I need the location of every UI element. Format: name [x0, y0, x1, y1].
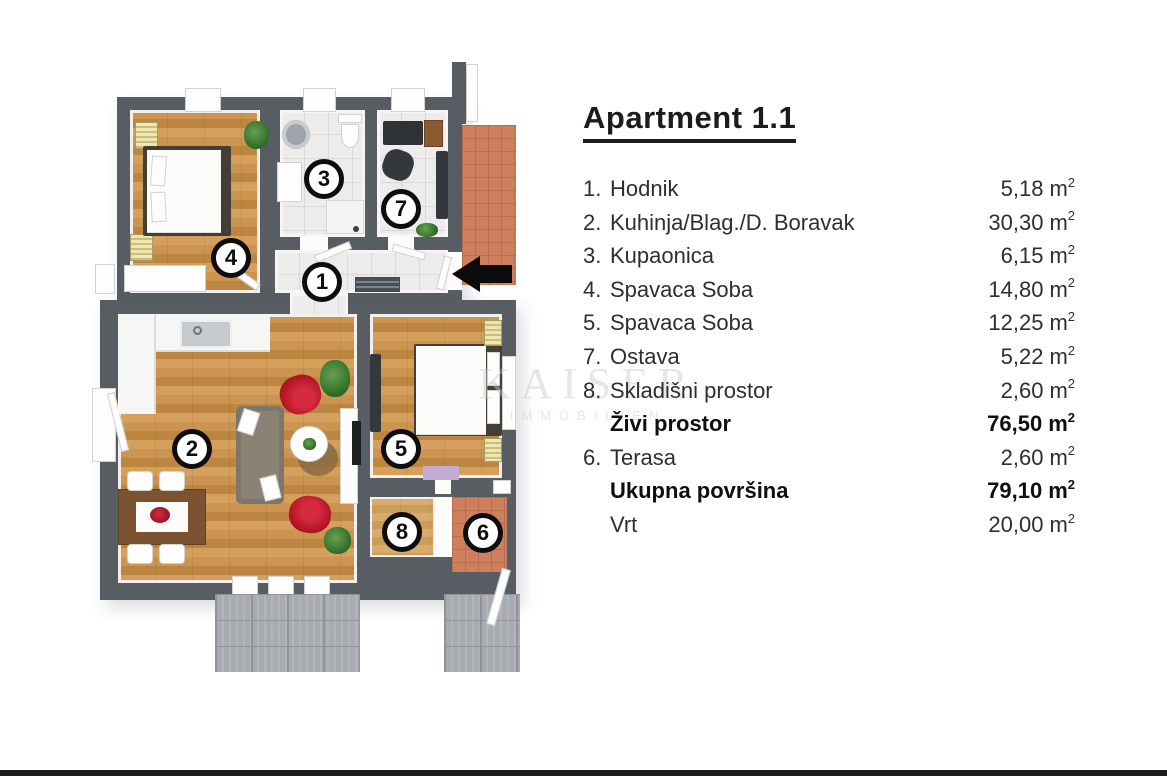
bottom-border-bar — [0, 770, 1167, 776]
window-bottom-wall-right — [493, 480, 511, 494]
area-row-ostava: 7. Ostava 5,22m2 — [583, 340, 1075, 374]
row-label: Skladišni prostor — [610, 374, 1001, 408]
door-gap-room5-room8 — [435, 480, 451, 494]
window-room4-top — [185, 88, 221, 112]
row-number: 8. — [583, 374, 610, 408]
room-badge-6: 6 — [463, 513, 503, 553]
bathroom-sink — [277, 162, 302, 202]
shower-drain — [353, 226, 359, 232]
row-value: 30,30m2 — [988, 206, 1075, 240]
row-number: 1. — [583, 172, 610, 206]
row-value: 79,10m2 — [987, 474, 1075, 508]
wall-room8-bottom — [357, 557, 452, 572]
area-row-spavaca-2: 5. Spavaca Soba 12,25m2 — [583, 306, 1075, 340]
window-room5-right — [502, 356, 516, 430]
area-row-hodnik: 1. Hodnik 5,18m2 — [583, 172, 1075, 206]
mat-lavender — [423, 466, 459, 480]
coffee-table-plant — [303, 438, 316, 450]
row-value: 2,60m2 — [1001, 441, 1075, 475]
terrace-corridor — [435, 497, 452, 557]
bed-room5-pillow-1 — [487, 352, 500, 386]
dining-chair-3 — [127, 544, 153, 564]
tv-screen — [352, 421, 361, 465]
kitchen-faucet — [193, 326, 202, 335]
plant-living-tall — [320, 360, 350, 397]
room-badge-5: 5 — [381, 429, 421, 469]
plant-room7 — [416, 223, 438, 237]
row-label: Ukupna površina — [610, 474, 987, 508]
wall-stub-white — [466, 64, 478, 122]
room-badge-3: 3 — [304, 159, 344, 199]
area-row-skladisni: 8. Skladišni prostor 2,60m2 — [583, 374, 1075, 408]
kitchen-counter-left — [118, 314, 156, 414]
area-row-kuhinja: 2. Kuhinja/Blag./D. Boravak 30,30m2 — [583, 206, 1075, 240]
toilet-tank — [338, 114, 362, 123]
bed-room5-pillow-2 — [487, 390, 500, 424]
patio-left — [215, 594, 360, 672]
room-badge-7: 7 — [381, 189, 421, 229]
kitchen-sink — [180, 320, 232, 348]
plant-living-low — [324, 527, 351, 554]
room-badge-4: 4 — [211, 238, 251, 278]
washing-machine — [282, 120, 310, 149]
room-badge-1: 1 — [302, 262, 342, 302]
row-label: Ostava — [610, 340, 1001, 374]
window-room7-top — [391, 88, 425, 112]
entrance-arrow-shaft — [479, 265, 512, 283]
bed-room4-pillow-1 — [150, 156, 167, 187]
wall-stub-top — [452, 62, 466, 124]
radiator-room4-top — [135, 122, 158, 149]
window-bath-top — [303, 88, 336, 112]
door-gap-bath — [300, 237, 328, 250]
area-row-spavaca-1: 4. Spavaca Soba 14,80m2 — [583, 273, 1075, 307]
dining-chair-2 — [159, 471, 185, 491]
area-row-vrt: Vrt 20,00m2 — [583, 508, 1075, 542]
radiator-room5-bottom — [484, 438, 502, 462]
row-value: 12,25m2 — [988, 306, 1075, 340]
desk-room7 — [383, 121, 423, 145]
row-label: Vrt — [610, 508, 988, 542]
patio-right — [444, 594, 520, 672]
row-number: 4. — [583, 273, 610, 307]
entrance-arrow-icon — [452, 256, 480, 292]
page-title: Apartment 1.1 — [583, 100, 796, 143]
row-label: Živi prostor — [610, 407, 987, 441]
row-number — [583, 474, 610, 508]
dining-chair-4 — [159, 544, 185, 564]
radiator-room4-bottom — [130, 234, 153, 261]
toilet-bowl — [341, 124, 359, 148]
dining-chair-1 — [127, 471, 153, 491]
row-number: 3. — [583, 239, 610, 273]
area-row-ukupna: Ukupna površina 79,10m2 — [583, 474, 1075, 508]
row-value: 14,80m2 — [988, 273, 1075, 307]
floorplan: 4 3 7 1 2 5 8 6 — [0, 0, 540, 700]
row-number: 7. — [583, 340, 610, 374]
radiator-room5-top — [484, 320, 502, 346]
row-label: Spavaca Soba — [610, 273, 988, 307]
row-label: Kupaonica — [610, 239, 1001, 273]
room-badge-8: 8 — [382, 512, 422, 552]
row-number: 5. — [583, 306, 610, 340]
row-label: Hodnik — [610, 172, 1001, 206]
wardrobe-room5 — [370, 354, 381, 432]
row-label: Kuhinja/Blag./D. Boravak — [610, 206, 988, 240]
row-value: 20,00m2 — [988, 508, 1075, 542]
table-flowers — [150, 507, 170, 523]
row-label: Terasa — [610, 441, 1001, 475]
floorplan-page: 4 3 7 1 2 5 8 6 KAISER IMMOBILIEN Apartm… — [0, 0, 1167, 776]
row-number: 2. — [583, 206, 610, 240]
bed-room4-pillow-2 — [150, 192, 167, 223]
area-row-zivi-prostor: Živi prostor 76,50m2 — [583, 407, 1075, 441]
row-value: 5,18m2 — [1001, 172, 1075, 206]
plant-room4 — [244, 121, 269, 149]
row-value: 5,22m2 — [1001, 340, 1075, 374]
row-number — [583, 407, 610, 441]
cabinet-room7 — [424, 120, 443, 147]
exterior-ledge — [95, 264, 115, 294]
area-table: 1. Hodnik 5,18m2 2. Kuhinja/Blag./D. Bor… — [583, 172, 1075, 542]
wardrobe-room4 — [124, 265, 206, 292]
row-value: 2,60m2 — [1001, 374, 1075, 408]
row-label: Spavaca Soba — [610, 306, 988, 340]
row-number — [583, 508, 610, 542]
room-badge-2: 2 — [172, 429, 212, 469]
bed-room5-mattress — [416, 346, 486, 435]
wardrobe-room7 — [436, 151, 448, 219]
row-value: 6,15m2 — [1001, 239, 1075, 273]
floor-grate — [355, 277, 400, 292]
area-row-kupaonica: 3. Kupaonica 6,15m2 — [583, 239, 1075, 273]
row-value: 76,50m2 — [987, 407, 1075, 441]
area-row-terasa: 6. Terasa 2,60m2 — [583, 441, 1075, 475]
row-number: 6. — [583, 441, 610, 475]
